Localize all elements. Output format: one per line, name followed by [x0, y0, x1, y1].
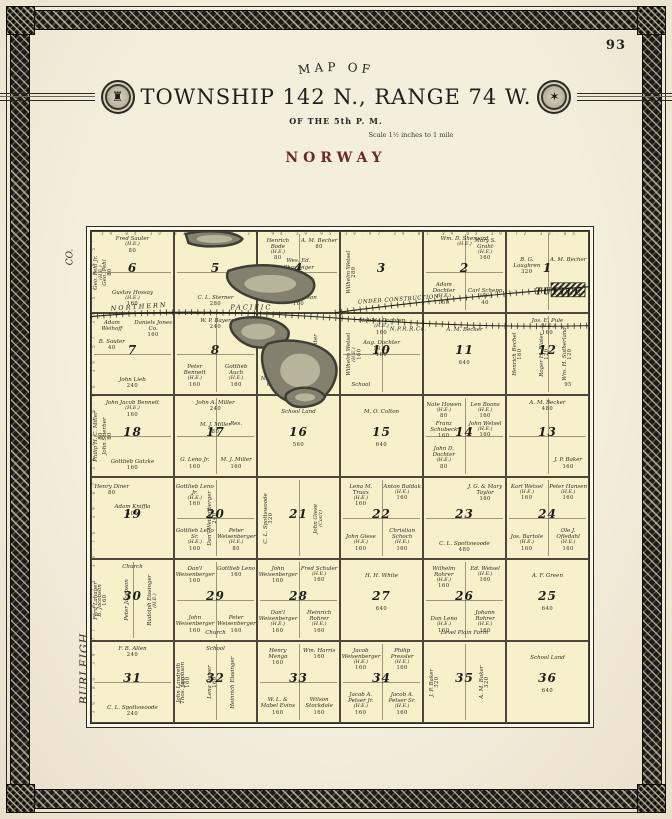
section-number: 6	[98, 261, 166, 275]
pacres: 80	[93, 491, 131, 497]
pacres: 160	[383, 547, 421, 553]
section-number: 27	[347, 589, 415, 603]
parcel-label: M. O. Colton	[346, 409, 417, 415]
parcel-label: Fred Schuler(H.E.)160	[300, 566, 338, 584]
map-title: TOWNSHIP 142 N., RANGE 74 W.	[141, 85, 532, 109]
pname: Ed. Wetsel	[466, 566, 504, 572]
pname: Heinrich Rohrer	[300, 610, 338, 622]
pname: Wm. Harris	[300, 648, 338, 654]
section-number: 3	[347, 261, 415, 275]
banner-rule-right	[577, 93, 672, 101]
parcel-label: C. L. Spottswoode240	[98, 705, 166, 718]
section-number: 4	[264, 261, 332, 275]
pacres: 160	[549, 465, 587, 471]
parcel-label: W. L. & Mabel Evins160	[259, 697, 297, 716]
pacres: 80	[300, 245, 338, 251]
section-12: 12Jos. E. Pule(H.E.)160Henrich Bechel160…	[506, 313, 589, 395]
pacres: 160	[300, 629, 338, 635]
pname: Ole J. Ofledahl	[549, 528, 587, 540]
parcel-label: John A. Miller240	[181, 400, 249, 413]
pnote: (H.E.)	[217, 376, 255, 381]
parcel-label: G. Leno Jr.160	[176, 457, 214, 470]
pname: Gottlieb Leno Sr.	[176, 528, 214, 540]
pname: H. H. White	[346, 573, 417, 579]
parcel-label: M. J. Miller160	[217, 457, 255, 470]
pacres: 160	[217, 465, 255, 471]
section-13: 13A. M. Becker480J. P. Baker160	[506, 395, 589, 477]
title-banner: ♜ TOWNSHIP 142 N., RANGE 74 W. ✶	[0, 80, 672, 114]
parcel-label: Matilda Dochter(H.E.)160	[347, 318, 415, 336]
parcel-label: Dan'l Weisenberger(H.E.)160	[259, 610, 297, 634]
parcel-label: Ed. Severson160	[264, 295, 332, 308]
pname: Karl Wetsel	[508, 484, 546, 490]
pacres: 80	[98, 249, 166, 255]
parcel-label: John D. Dochter(H.E.)80	[425, 446, 463, 470]
pacres: 160	[259, 629, 297, 635]
pname: School	[181, 646, 249, 652]
parcel-label: A. M. Becher80	[300, 238, 338, 251]
section-number: 2	[430, 261, 498, 275]
section-number: 31	[98, 671, 166, 685]
pacres: 160	[176, 547, 214, 553]
pnote: (H.E.)	[383, 704, 421, 709]
parcel-label: Wm. Harris160	[300, 648, 338, 661]
pname: School Land	[263, 409, 334, 415]
section-7: 7Adam WelhoffDaniels Jones Co.160B. Saut…	[91, 313, 174, 395]
pname: Gottlieb Leno	[217, 566, 255, 572]
border-band-bottom	[10, 789, 662, 809]
pacres: 160	[259, 579, 297, 585]
section-5: 5Jerome E. Warren160C. L. Sterner280	[174, 231, 257, 313]
map-inner: 39.84 39.87 39.91 39.94 39.95 39.97 39.8…	[90, 230, 590, 724]
section-number: 35	[430, 671, 498, 685]
parcel-label: John Weisenberger160	[259, 566, 297, 585]
seal-medallion-icon: ✶	[537, 80, 571, 114]
section-number: 12	[513, 343, 581, 357]
pname: Peter Weisenberger	[217, 615, 255, 627]
parcel-label: Mary S. Graht(H.E.)160	[466, 238, 504, 262]
pname: Jacob Weisenberger	[342, 648, 380, 660]
pacres: 240	[98, 653, 166, 659]
section-20: 20Gottlieb Leno Jr.(H.E.)160Dan'l Weisen…	[174, 477, 257, 559]
pacres: 160	[466, 414, 504, 420]
parcel-label: Len Boons(H.E.)160	[466, 402, 504, 420]
section-number: 15	[347, 425, 415, 439]
section-16: 16School Land560	[257, 395, 340, 477]
pacres: 160	[342, 711, 380, 717]
svg-text:MAP OF: MAP OF	[297, 60, 375, 77]
pname: Johann Rohrer	[466, 610, 504, 622]
parcel-label: Fred Sauter(H.E.)80	[98, 236, 166, 254]
pacres: 560	[263, 443, 334, 449]
parcel-label: Jerome E. Warren160	[181, 236, 249, 249]
tower-medallion-icon: ♜	[101, 80, 135, 114]
parcel-label: F. B. Allen240	[98, 646, 166, 659]
section-number: 34	[347, 671, 415, 685]
pnote: (H.E.)	[98, 242, 166, 247]
pname: M. J. Miller	[217, 457, 255, 463]
pacres: 160	[176, 465, 214, 471]
pname: Dan'l Weisenberger	[176, 566, 214, 578]
section-4: 4Henrich Bode(H.E.)80A. M. Becher80Wes. …	[257, 231, 340, 313]
pacres: 480	[513, 407, 581, 413]
pacres: 160	[134, 333, 172, 339]
parcel-acreage: 640	[346, 606, 417, 613]
pacres: 160	[264, 302, 332, 308]
pname: Peter Bennett	[176, 364, 214, 376]
section-35: 35J. P. Baker320A. M. Baker320	[423, 641, 506, 723]
section-2: 2Wm. D. Shervard(H.E.)Mary S. Graht(H.E.…	[423, 231, 506, 313]
parcel-label: Jacob A. Petser Jr.(H.E.)160	[342, 692, 380, 716]
parcel-label: Wilson Stockdale160	[300, 697, 338, 716]
section-34: 34Jacob Weisenberger(H.E.)160Philip Pres…	[340, 641, 423, 723]
section-28: 28John Weisenberger160Fred Schuler(H.E.)…	[257, 559, 340, 641]
pacres: 160	[508, 496, 546, 502]
section-number: 7	[98, 343, 166, 357]
section-15: 15M. O. Colton640	[340, 395, 423, 477]
pnote: (H.E.)	[425, 458, 463, 463]
parcel-acreage: 640	[346, 442, 417, 449]
parcel-label: Ed. Wetsel(H.E.)160	[466, 566, 504, 584]
parcel-label: Lena M. Truax(H.E.)160	[342, 484, 380, 508]
parcel-label: Gottlieb Leno160	[217, 566, 255, 579]
pacres: 160	[259, 711, 297, 717]
parcel-label: Peter Bennett(H.E.)160	[176, 364, 214, 388]
parcel-label: Gottlieb Gatzke160	[98, 459, 166, 472]
section-30: 30Ferd LahagerB. Jacobson160Peter Jacobs…	[91, 559, 174, 641]
title-block: MAP OF ♜ TOWNSHIP 142 N., RANGE 74 W. ✶ …	[0, 54, 672, 166]
parcel-label: Christian Schoch(H.E.)160	[383, 528, 421, 552]
meridian-subtitle: OF THE 5th P. M.	[0, 116, 672, 126]
parcel-label: School Land	[263, 409, 334, 415]
section-number: 18	[98, 425, 166, 439]
section-19: 19Henry Diner80Adam Kniffla400	[91, 477, 174, 559]
pacres: 160	[466, 578, 504, 584]
parcel-acreage: 640	[429, 360, 500, 367]
pacres: 160	[217, 383, 255, 389]
section-number: 32	[181, 671, 249, 685]
pname: J. P. Baker	[549, 457, 587, 463]
pname: A. F. Green	[512, 573, 583, 579]
pacres: 160	[176, 579, 214, 585]
section-number: 16	[264, 425, 332, 439]
pname: Jacob A. Petser Jr.	[342, 692, 380, 704]
parcel-label: John Jacob Bennett(H.E.)160	[98, 400, 166, 418]
pacres: 160	[466, 497, 504, 503]
parcel-label: A. M. Becker	[429, 327, 500, 333]
parcel-label: N. & S. Dak. Col. Co.	[259, 376, 297, 388]
pname: Church	[98, 564, 166, 570]
section-number: 10	[347, 343, 415, 357]
parcel-label: School	[181, 646, 249, 652]
pacres: 160	[259, 661, 297, 667]
parcel-label: Jos. Bartole(H.E.)160	[508, 534, 546, 552]
parcel-label: Jacob Weisenberger(H.E.)160	[342, 648, 380, 672]
pname: J. G. & Mary Taylor	[466, 484, 504, 496]
section-number: 11	[430, 343, 498, 357]
section-11: 11A. M. Becker640	[423, 313, 506, 395]
pname: Henry Mengo	[259, 648, 297, 660]
parcel-label: Nate Howen(H.E.)80	[425, 402, 463, 420]
pacres: 240	[181, 325, 249, 331]
section-36: 36School Land640	[506, 641, 589, 723]
section-number: 19	[98, 507, 166, 521]
pacres: 80	[425, 414, 463, 420]
border-corner	[6, 784, 35, 813]
section-number: 36	[513, 671, 581, 685]
parcel-label: School Land	[512, 655, 583, 661]
pname: Wilhelm Rohrer	[425, 566, 463, 578]
section-number: 26	[430, 589, 498, 603]
parcel-label: Peter Hansen(H.E.)160	[549, 484, 587, 502]
pacres: 160	[98, 413, 166, 419]
section-18: 18Philip H. C. Miller80John Stierber80Jo…	[91, 395, 174, 477]
parcel-label: Gottlieb Auch(H.E.)160	[217, 364, 255, 388]
pacres: 80	[425, 465, 463, 471]
pacres: 40	[466, 301, 504, 307]
section-31: 31F. B. Allen240C. L. Spottswoode240	[91, 641, 174, 723]
pacres: 240	[181, 407, 249, 413]
parcel-label: Heinrich Rohrer(H.E.)160	[300, 610, 338, 634]
section-25: 25A. F. Green640	[506, 559, 589, 641]
section-number: 22	[347, 507, 415, 521]
parcel-label: Philip Pressler(H.E.)160	[383, 648, 421, 672]
pacres: 160	[300, 578, 338, 584]
pnote: (H.E.)	[300, 622, 338, 627]
parcel-label: School	[342, 382, 380, 388]
section-number: 1	[513, 261, 581, 275]
seal-glyph: ✶	[549, 90, 560, 105]
tower-glyph: ♜	[112, 90, 124, 105]
parcel-label: Wilhelm Rohrer(H.E.)160	[425, 566, 463, 590]
parcel-label: A. M. Becker480	[513, 400, 581, 413]
pacres: 640	[512, 607, 583, 613]
pname: Peter Hansen	[549, 484, 587, 490]
section-10: 10Wilhelm Wetsel(H.E.)160Matilda Dochter…	[340, 313, 423, 395]
pacres: 280	[181, 302, 249, 308]
section-8: 8W. P. Bayer240Peter Bennett(H.E.)160Got…	[174, 313, 257, 395]
pname: School	[342, 382, 380, 388]
border-corner	[637, 6, 666, 35]
pname: Christian Schoch	[383, 528, 421, 540]
map-of-text: MAP OF	[297, 60, 375, 77]
parcel-label: Henry Diner80	[93, 484, 131, 497]
section-33: 33Henry Mengo160Wm. Harris160W. L. & Mab…	[257, 641, 340, 723]
section-number: 14	[430, 425, 498, 439]
pnote: (H.E.)	[176, 540, 214, 545]
pname: Nate Howen	[425, 402, 463, 408]
pnote: (H.E.)	[342, 704, 380, 709]
parcel-label: Dan'l Weisenberger160	[176, 566, 214, 585]
pname: N. & S. Dak. Col. Co.	[259, 376, 297, 388]
section-3: 3Wilhelm Wetsel280	[340, 231, 423, 313]
pname: John Weisenberger	[176, 615, 214, 627]
pacres: 160	[176, 383, 214, 389]
pnote: (H.E.)	[98, 406, 166, 411]
section-number: 28	[264, 589, 332, 603]
pacres: 160	[549, 496, 587, 502]
pname: W. L. & Mabel Evins	[259, 697, 297, 709]
pacres: 160	[300, 711, 338, 717]
parcel-label: Adam Welhoff	[93, 320, 131, 332]
county-label-co: CO.	[65, 249, 75, 266]
pname: Peter Weisenberger	[217, 528, 255, 540]
pname: John D. Dochter	[425, 446, 463, 458]
parcel-label: Ole J. Ofledahl(H.E.)160	[549, 528, 587, 552]
pname: M. O. Colton	[346, 409, 417, 415]
section-22: 22Lena M. Truax(H.E.)160Anton Baldak(H.E…	[340, 477, 423, 559]
section-27: 27H. H. White640	[340, 559, 423, 641]
pacres: 160	[347, 331, 415, 337]
section-number: 24	[513, 507, 581, 521]
parcel-label: Carl Schepp(H.E.)40	[466, 288, 504, 306]
pacres: 160	[342, 547, 380, 553]
pname: Jacob A. Petser Sr.	[383, 692, 421, 704]
parcel-acreage: 560	[263, 442, 334, 449]
parcel-label: H. H. White	[346, 573, 417, 579]
pnote: (H.E.)	[342, 540, 380, 545]
pnote: (H.E.)	[549, 540, 587, 545]
section-number: 17	[181, 425, 249, 439]
section-number: 29	[181, 589, 249, 603]
parcel-label: C. L. Sterner280	[181, 295, 249, 308]
pname: John Weisenberger	[259, 566, 297, 578]
pname: Mary S. Graht	[466, 238, 504, 250]
township-name: NORWAY	[0, 150, 672, 166]
section-9: 9N. & S. Dak. Col. Co.Chris' Dochter	[257, 313, 340, 395]
section-23: 23J. G. & Mary Taylor160C. L. Spottswood…	[423, 477, 506, 559]
section-number: 13	[513, 425, 581, 439]
section-number: 25	[513, 589, 581, 603]
pnote: (H.E.)	[347, 324, 415, 329]
border-corner	[6, 6, 35, 35]
section-29: 29Dan'l Weisenberger160Gottlieb Leno160J…	[174, 559, 257, 641]
section-number: 23	[430, 507, 498, 521]
pacres: 80	[217, 547, 255, 553]
pname: A. M. Becher	[300, 238, 338, 244]
parcel-label: 95	[549, 382, 587, 389]
pnote: (H.E.)	[259, 622, 297, 627]
pacres: 240	[98, 712, 166, 718]
parcel-label: Gustav Hossay(H.E.)160	[98, 290, 166, 308]
section-26: 26Wilhelm Rohrer(H.E.)160Ed. Wetsel(H.E.…	[423, 559, 506, 641]
pname: Daniels Jones Co.	[134, 320, 172, 332]
pacres: 160	[98, 302, 166, 308]
parcel-label: C. L. Spottswoode480	[430, 541, 498, 554]
scale-note: Scale 1½ inches to 1 mile	[150, 131, 672, 139]
pnote: (H.E.)	[466, 294, 504, 299]
pacres: 640	[346, 443, 417, 449]
parcel-acreage: 640	[512, 606, 583, 613]
parcel-label: Henry Mengo160	[259, 648, 297, 667]
parcel-acreage: 640	[512, 688, 583, 695]
pacres: 160	[549, 547, 587, 553]
pacres: 160	[98, 466, 166, 472]
parcel-label: J. P. Baker160	[549, 457, 587, 470]
pacres: 240	[98, 384, 166, 390]
pacres: 480	[430, 548, 498, 554]
pnote: (H.E.)	[217, 540, 255, 545]
section-number: 30	[98, 589, 166, 603]
parcel-label: Anton Baldak(H.E.)160	[383, 484, 421, 502]
pname: Dan'l Weisenberger	[259, 610, 297, 622]
section-21: 21C. L. Spottswoode320John Giese(Con't)	[257, 477, 340, 559]
section-number: 33	[264, 671, 332, 685]
section-14: 14Nate Howen(H.E.)80Len Boons(H.E.)160Fr…	[423, 395, 506, 477]
border-band-top	[10, 10, 662, 30]
pacres: 160	[181, 243, 249, 249]
border-corner	[637, 784, 666, 813]
section-number: 21	[264, 507, 332, 521]
section-1: 1B. G. Laughren320A. M. Becher	[506, 231, 589, 313]
pnote: (H.E.)	[383, 540, 421, 545]
pacres: 160	[383, 711, 421, 717]
page-number: 93	[606, 38, 626, 53]
section-32: 32John Landreth160Thos. Jacobson160Lena …	[174, 641, 257, 723]
parcel-label: Karl Wetsel(H.E.)160	[508, 484, 546, 502]
banner-rule-left	[0, 93, 95, 101]
parcel-label: John Lieb240	[98, 377, 166, 390]
pname: G. Leno Jr.	[176, 457, 214, 463]
atlas-page: 93 MAP OF ♜ TOWNSHIP 142 N., RANGE 74 W.…	[0, 0, 672, 819]
pname: Adam Dochter	[425, 282, 463, 294]
parcel-label: A. F. Green	[512, 573, 583, 579]
pnote: (H.E.)	[466, 622, 504, 627]
parcel-label: Johann Rohrer(H.E.)160	[466, 610, 504, 634]
parcel-label: Adam Dochter(H.E.)160	[425, 282, 463, 306]
parcel-label: Gottlieb Leno Sr.(H.E.)160	[176, 528, 214, 552]
pname: Gottlieb Auch	[217, 364, 255, 376]
pnote: (H.E.)	[508, 540, 546, 545]
pname: Wilson Stockdale	[300, 697, 338, 709]
pacres: 160	[508, 547, 546, 553]
parcel-label: W. P. Bayer240	[181, 318, 249, 331]
section-grid: 6Geo. Pehl Jr.(H.E.)Geo. Pehl80Fred Saut…	[91, 231, 589, 723]
pname: A. M. Becker	[429, 327, 500, 333]
pname: Lena M. Truax	[342, 484, 380, 496]
pacres: 160	[217, 573, 255, 579]
pname: School Land	[512, 655, 583, 661]
map-panel: 39.84 39.87 39.91 39.94 39.95 39.97 39.8…	[86, 226, 594, 728]
section-6: 6Geo. Pehl Jr.(H.E.)Geo. Pehl80Fred Saut…	[91, 231, 174, 313]
parcel-label: Peter Weisenberger(H.E.)80	[217, 528, 255, 552]
pname: Adam Welhoff	[93, 320, 131, 332]
pacres: 160	[425, 301, 463, 307]
parcel-label: Church	[181, 630, 249, 636]
parcel-label: Jacob A. Petser Sr.(H.E.)160	[383, 692, 421, 716]
parcel-label: Church	[98, 564, 166, 570]
pacres: 640	[346, 607, 417, 613]
pacres: 160	[383, 496, 421, 502]
pacres: 95	[549, 383, 587, 389]
section-number: 8	[181, 343, 249, 357]
parcel-label: Daniels Jones Co.160	[134, 320, 172, 339]
section-number: 20	[181, 507, 249, 521]
pacres: 640	[429, 361, 500, 367]
pnote: (H.E.)	[425, 622, 463, 627]
pname: Philip Pressler	[383, 648, 421, 660]
pacres: 160	[300, 655, 338, 661]
section-number: 5	[181, 261, 249, 275]
section-24: 24Karl Wetsel(H.E.)160Peter Hansen(H.E.)…	[506, 477, 589, 559]
section-number: 9	[264, 343, 332, 357]
pname: Anton Baldak	[383, 484, 421, 490]
section-17: 17John A. Miller240M. J. Miller80Res.G. …	[174, 395, 257, 477]
pname: Len Boons	[466, 402, 504, 408]
pnote: (H.E.)	[425, 294, 463, 299]
pname: Fred Schuler	[300, 566, 338, 572]
pname: Church	[181, 630, 249, 636]
